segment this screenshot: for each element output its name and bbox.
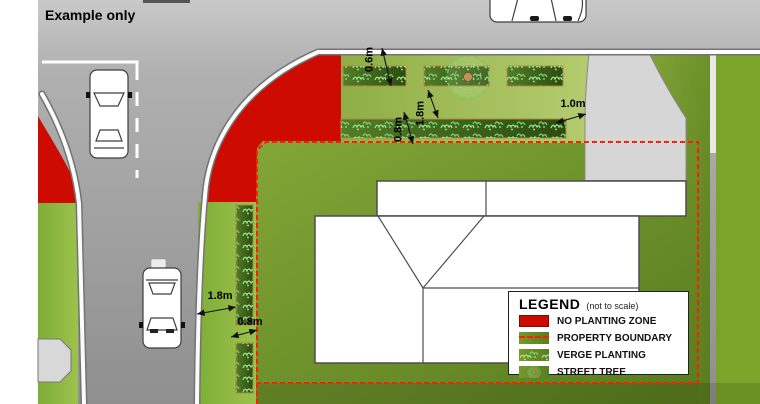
legend-item-label: NO PLANTING ZONE [557,316,656,327]
dim-label-top-strip-depth: 0.6m [364,42,377,78]
dim-label-west-strip-width: 0.8m [232,316,268,329]
car-northbound [86,70,132,158]
verge-planting-swatch [519,349,549,361]
legend-item-no-planting: NO PLANTING ZONE [519,313,681,329]
legend-item-street-tree: STREET TREE [519,364,681,380]
lot-rear-shade [256,383,760,404]
dim-label-driveway-clearance: 1.0m [555,98,591,111]
legend-item-label: STREET TREE [557,367,626,378]
centerline-mark [151,259,166,268]
house-rear-wing [377,181,686,216]
dim-label-lower-strip-depth: 0.8m [393,112,406,148]
property-boundary-swatch [519,332,549,344]
legend-subtitle: (not to scale) [586,301,638,311]
car-southbound [139,268,185,348]
car-edge-sliver [143,0,190,3]
no-planting-swatch [519,315,549,327]
page-margin [0,0,38,404]
lot-fence-line [710,53,716,153]
car-top-road [490,0,586,22]
page-title: Example only [45,7,135,23]
legend-item-label: VERGE PLANTING [557,350,646,361]
legend-item-verge-planting: VERGE PLANTING [519,347,681,363]
site-plan-diagram: Example only 0.6m 1.8m 0.8m 1.0m 1.8m 0.… [0,0,760,404]
dim-label-west-verge-width: 1.8m [202,290,238,303]
legend-title: LEGEND [519,296,580,312]
legend: LEGEND (not to scale) NO PLANTING ZONE P… [508,291,689,375]
west-driveway [38,339,71,382]
dim-label-top-strip-gap: 1.8m [415,96,428,132]
street-tree-swatch [519,366,549,378]
street-tree-symbol [447,56,489,98]
legend-item-boundary: PROPERTY BOUNDARY [519,330,681,346]
legend-item-label: PROPERTY BOUNDARY [557,333,672,344]
neighbor-lot [716,53,760,404]
